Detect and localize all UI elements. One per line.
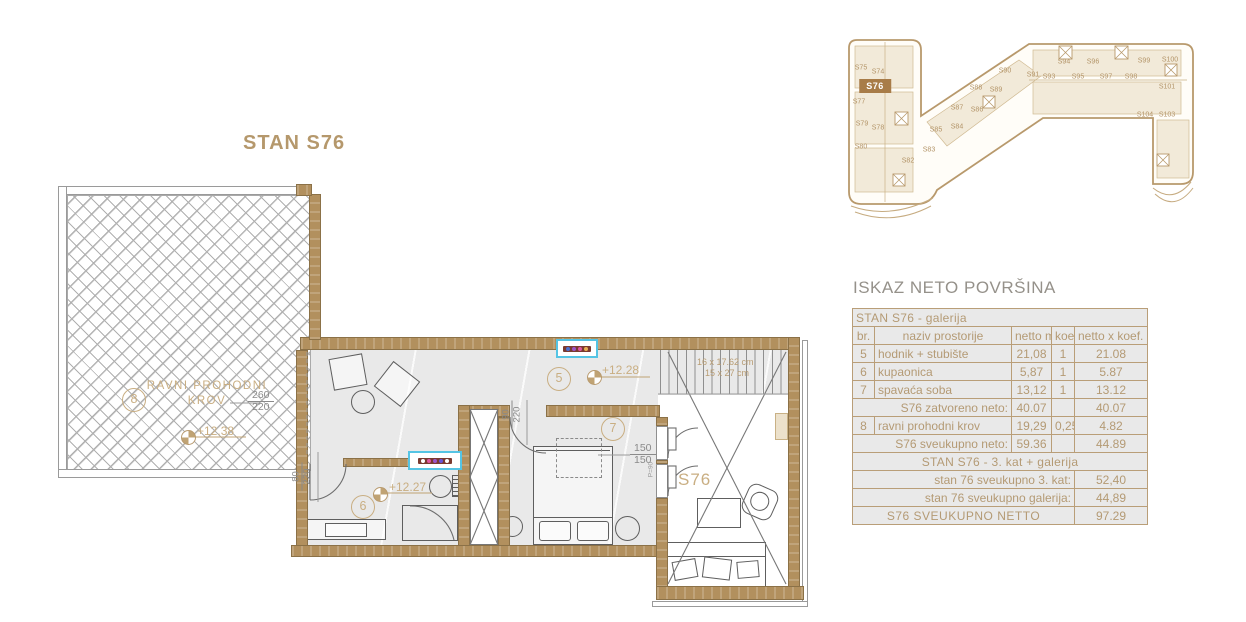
stair-dim-line1: 16 x 17.62 cm	[697, 357, 754, 367]
key-plan-unit-S96: S96	[1087, 59, 1099, 66]
table-row-subtotal: S76 sveukupno neto:59.3644.89	[853, 435, 1148, 453]
data-cell: 5,87	[1012, 363, 1052, 381]
data-cell: 1	[1052, 345, 1075, 363]
data-cell: 21,08	[1012, 345, 1052, 363]
section-label: STAN S76 - 3. kat + galerija	[853, 453, 1148, 471]
wall-shaft-right	[498, 417, 510, 557]
section-label: STAN S76 - galerija	[853, 309, 1148, 327]
data-cell: 1	[1052, 381, 1075, 399]
electric-box-bath	[408, 451, 462, 470]
key-plan-unit-S75: S75	[855, 65, 867, 72]
table-row-wide: stan 76 sveukupno 3. kat:52,40	[853, 471, 1148, 489]
table-row-wide: stan 76 sveukupno galerija:44,89	[853, 489, 1148, 507]
armchair-hall-1	[328, 353, 367, 390]
window-bedroom-1	[656, 426, 668, 460]
wall-terrace-corner	[296, 184, 312, 196]
key-plan-unit-highlighted: S76	[859, 79, 891, 93]
data-cell: kupaonica	[875, 363, 1012, 381]
key-plan-unit-S91: S91	[1027, 72, 1039, 79]
wide-label: stan 76 sveukupno galerija:	[853, 489, 1075, 507]
level-mark-terrace	[181, 430, 196, 445]
data-cell: 6	[853, 363, 875, 381]
data-cell: 8	[853, 417, 875, 435]
key-plan-unit-S79: S79	[856, 121, 868, 128]
key-plan-unit-S93: S93	[1043, 74, 1055, 81]
area-table: STAN S76 - galerijabr.naziv prostorijene…	[852, 308, 1148, 525]
key-plan-unit-S95: S95	[1072, 74, 1084, 81]
drawing-canvas: STAN S76	[0, 0, 1246, 622]
dim-220b: 220	[302, 463, 313, 491]
key-plan-unit-S80: S80	[855, 144, 867, 151]
wide-value: 52,40	[1075, 471, 1148, 489]
data-cell: 13.12	[1075, 381, 1148, 399]
armchair-void-seat	[747, 489, 772, 514]
column-header: koef.	[1052, 327, 1075, 345]
table-row-grand: S76 SVEUKUPNO NETTO97.29	[853, 507, 1148, 525]
room-number-bath: 6	[351, 495, 375, 519]
data-cell: 1	[1052, 363, 1075, 381]
dim-150a: 150	[630, 443, 656, 454]
key-plan-unit-S74: S74	[872, 69, 884, 76]
area-table-title: ISKAZ NETO POVRŠINA	[853, 278, 1148, 298]
washbasin	[325, 523, 367, 537]
column-header: netto m²	[1012, 327, 1052, 345]
data-cell: hodnik + stubište	[875, 345, 1012, 363]
installation-shaft	[470, 409, 498, 545]
key-plan-unit-S84: S84	[951, 124, 963, 131]
parapet-note: P=90	[646, 457, 657, 483]
kitchen-block-below	[775, 413, 788, 440]
parapet-void-bottom	[652, 601, 808, 607]
column-header: naziv prostorije	[875, 327, 1012, 345]
wall-bottom	[291, 545, 664, 557]
data-cell: 5.87	[1075, 363, 1148, 381]
dim-260: 260	[248, 390, 274, 401]
hall-level: +12.28	[602, 363, 639, 377]
subtotal-label: S76 sveukupno neto:	[853, 435, 1012, 453]
skylight-dashed	[556, 438, 602, 478]
area-table-wrap: ISKAZ NETO POVRŠINA STAN S76 - galerijab…	[852, 278, 1148, 525]
coffee-table-void	[697, 498, 741, 528]
key-plan-unit-S83: S83	[923, 147, 935, 154]
bed-bench-2	[577, 521, 609, 541]
subtotal-result: 44.89	[1075, 435, 1148, 453]
nightstand-right	[615, 516, 640, 541]
key-plan-unit-S85: S85	[930, 127, 942, 134]
wall-west	[296, 350, 308, 557]
subtotal-koef	[1052, 435, 1075, 453]
key-plan-unit-S101: S101	[1159, 84, 1175, 91]
dim-220c: 220	[512, 401, 523, 429]
table-row-section: STAN S76 - 3. kat + galerija	[853, 453, 1148, 471]
key-plan-unit-S90: S90	[999, 68, 1011, 75]
level-mark-bath	[373, 487, 388, 502]
dim-80: 80	[292, 463, 302, 491]
subtotal-koef	[1052, 399, 1075, 417]
table-row-data: 8ravni prohodni krov19,290,254.82	[853, 417, 1148, 435]
table-hall	[351, 390, 375, 414]
table-row-subtotal: S76 zatvoreno neto:40.0740.07	[853, 399, 1148, 417]
bath-level: +12.27	[389, 480, 426, 494]
window-bedroom-2	[656, 464, 668, 498]
sofa-pillow-3	[736, 560, 759, 579]
column-header: netto x koef. m²	[1075, 327, 1148, 345]
subtotal-label: S76 zatvoreno neto:	[853, 399, 1012, 417]
terrace-parapet-top	[58, 186, 310, 195]
key-plan-unit-S89: S89	[990, 87, 1002, 94]
table-row-data: 6kupaonica5,8715.87	[853, 363, 1148, 381]
electric-box-dots	[563, 346, 591, 352]
dim-80-220: 80 220	[292, 463, 313, 491]
wall-void-west-a	[656, 417, 668, 426]
key-plan-unit-S82: S82	[902, 158, 914, 165]
data-cell: 5	[853, 345, 875, 363]
bed-bench-1	[539, 521, 571, 541]
wall-void-west-c	[656, 498, 668, 588]
terrace-label-line2: KROV	[188, 395, 227, 407]
stair-dim-line2: 15 x 27 cm	[705, 368, 749, 378]
void-unit-label: S76	[678, 470, 711, 490]
key-plan-unit-S98: S98	[1125, 74, 1137, 81]
wall-terrace-east	[309, 194, 321, 340]
key-plan-unit-S88: S88	[970, 85, 982, 92]
data-cell: 19,29	[1012, 417, 1052, 435]
terrace-level: +12.38	[197, 424, 234, 438]
shower	[402, 505, 458, 541]
dim-260-220: 260 220	[248, 390, 274, 413]
grand-value: 97.29	[1075, 507, 1148, 525]
parapet-right	[802, 340, 808, 602]
key-plan-unit-S97: S97	[1100, 74, 1112, 81]
key-plan-unit-S104: S104	[1137, 112, 1153, 119]
plan-title: STAN S76	[243, 132, 345, 155]
wall-top	[300, 337, 800, 350]
sofa-pillow-1	[672, 558, 699, 581]
table-row-section: STAN S76 - galerija	[853, 309, 1148, 327]
wall-right-exterior	[788, 337, 800, 600]
data-cell: ravni prohodni krov	[875, 417, 1012, 435]
terrace-parapet-bottom	[58, 469, 310, 478]
key-plan-unit-S77: S77	[853, 99, 865, 106]
subtotal-result: 40.07	[1075, 399, 1148, 417]
sofa-pillow-2	[702, 556, 732, 580]
column-header: br.	[853, 327, 875, 345]
room-number-terrace: 8	[122, 388, 146, 412]
wall-bed-top-right	[546, 405, 660, 417]
data-cell: 7	[853, 381, 875, 399]
vanity-counter	[302, 519, 386, 540]
data-cell: 0,25	[1052, 417, 1075, 435]
key-plan: S75S74S77S79S78S80S82S83S85S84S87S86S88S…	[835, 16, 1207, 220]
key-plan-unit-S87: S87	[951, 105, 963, 112]
room-number-hall: 5	[547, 367, 571, 391]
armchair-void	[739, 481, 781, 523]
electric-box-hall	[556, 339, 598, 358]
key-plan-unit-S103: S103	[1159, 112, 1175, 119]
wall-shaft-left	[458, 405, 470, 557]
electric-box-dots	[418, 458, 452, 464]
table-row-header: br.naziv prostorijenetto m²koef.netto x …	[853, 327, 1148, 345]
subtotal-netto: 59.36	[1012, 435, 1052, 453]
dim-90: 90	[502, 401, 512, 429]
sofa	[666, 542, 766, 587]
wide-label: stan 76 sveukupno 3. kat:	[853, 471, 1075, 489]
key-plan-unit-S94: S94	[1058, 59, 1070, 66]
data-cell: 4.82	[1075, 417, 1148, 435]
data-cell: 13,12	[1012, 381, 1052, 399]
dim-220: 220	[248, 401, 274, 413]
key-plan-unit-S99: S99	[1138, 58, 1150, 65]
key-plan-unit-S100: S100	[1162, 57, 1178, 64]
key-plan-unit-S78: S78	[872, 125, 884, 132]
bed-blanket-line	[534, 517, 612, 518]
wall-void-bottom	[656, 586, 804, 600]
data-cell: 21.08	[1075, 345, 1148, 363]
grand-label: S76 SVEUKUPNO NETTO	[853, 507, 1075, 525]
dim-90-220: 90 220	[502, 401, 523, 429]
key-plan-unit-S86: S86	[971, 107, 983, 114]
toilet	[429, 475, 452, 498]
table-row-data: 7spavaća soba13,12113.12	[853, 381, 1148, 399]
data-cell: spavaća soba	[875, 381, 1012, 399]
subtotal-netto: 40.07	[1012, 399, 1052, 417]
level-mark-hall	[587, 370, 602, 385]
table-row-data: 5hodnik + stubište21,08121.08	[853, 345, 1148, 363]
terrace-parapet-left	[58, 186, 67, 478]
room-number-bed: 7	[601, 417, 625, 441]
wide-value: 44,89	[1075, 489, 1148, 507]
